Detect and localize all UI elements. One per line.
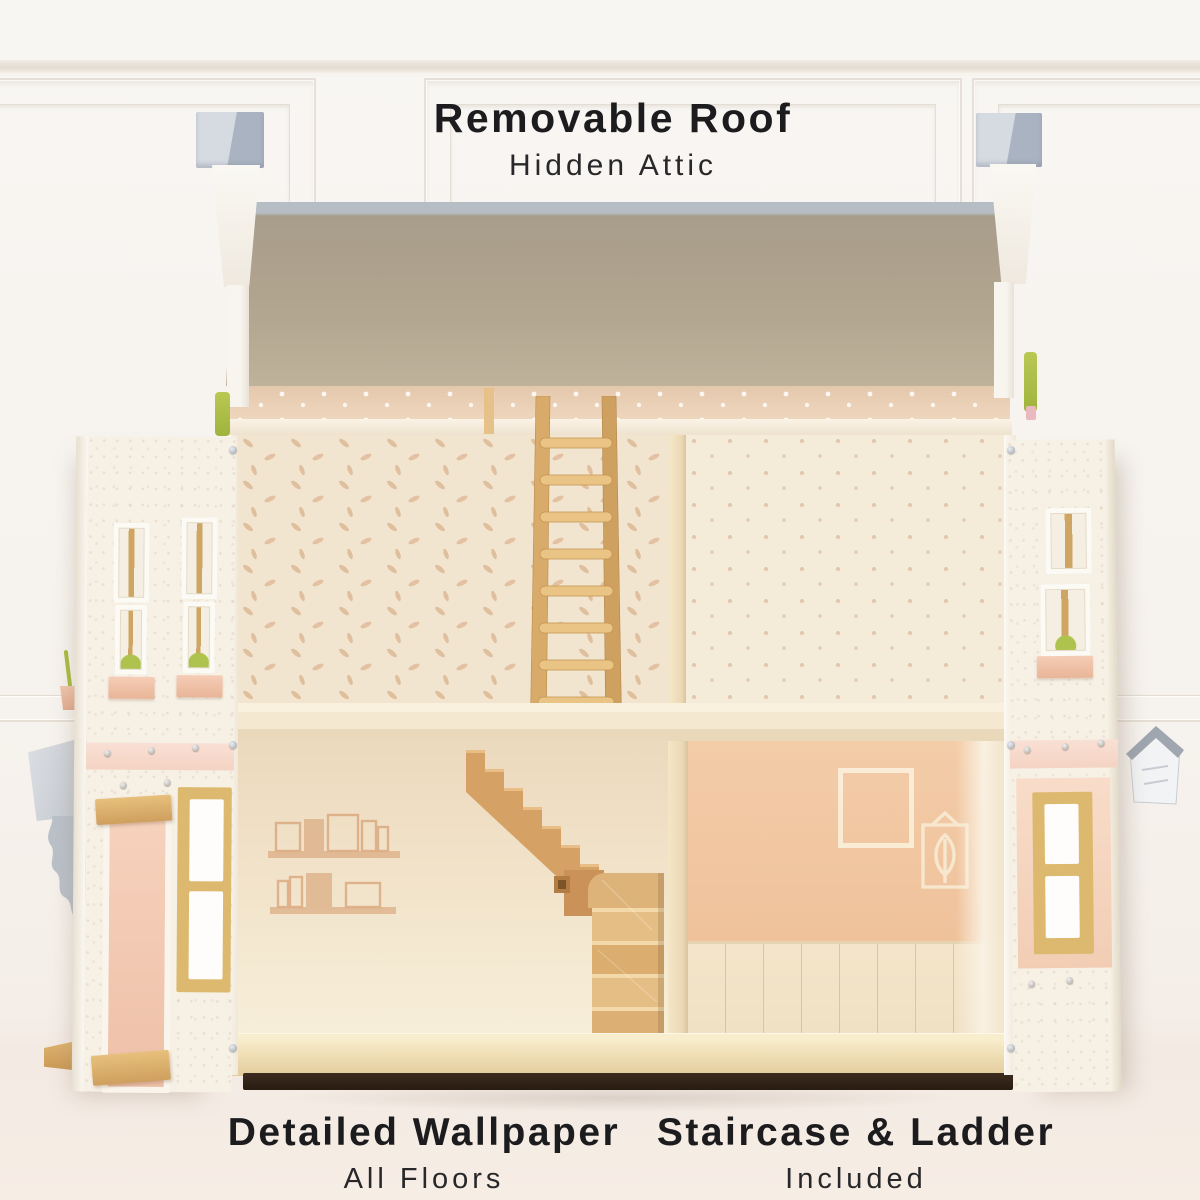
caption-bottom-right-subtitle: Included bbox=[657, 1162, 1055, 1197]
chimney-cap-left bbox=[196, 112, 264, 168]
caption-bottom-right-title: Staircase & Ladder bbox=[657, 1112, 1055, 1155]
dollhouse-product-photo: Removable Roof Hidden Attic Detailed Wal… bbox=[0, 0, 1200, 1200]
screw bbox=[104, 750, 111, 757]
facade-window bbox=[1040, 584, 1091, 657]
removable-roof-panel bbox=[226, 202, 1012, 386]
shelf-decal bbox=[268, 801, 418, 921]
chimney-post-right bbox=[994, 282, 1014, 398]
screw bbox=[164, 779, 171, 786]
facade-door-right bbox=[1007, 439, 1122, 1092]
screw bbox=[1062, 743, 1069, 750]
window-pane bbox=[1044, 804, 1079, 864]
window-pane bbox=[189, 891, 224, 979]
window-pane bbox=[1045, 876, 1080, 938]
dormer-birdhouse bbox=[1122, 726, 1184, 806]
caption-top: Removable Roof Hidden Attic bbox=[434, 96, 793, 184]
screw bbox=[1098, 740, 1105, 747]
window-pane bbox=[189, 799, 224, 881]
screw bbox=[1024, 746, 1031, 753]
caption-bottom-left: Detailed Wallpaper All Floors bbox=[228, 1112, 620, 1197]
facade-window bbox=[113, 523, 150, 603]
flower-pink bbox=[1026, 406, 1036, 420]
door-trim-top bbox=[95, 794, 172, 825]
tree-right bbox=[1024, 352, 1037, 412]
facade-window bbox=[183, 601, 216, 673]
screw bbox=[120, 782, 127, 789]
attic-hatch-post bbox=[484, 388, 494, 434]
hinge-screw bbox=[1007, 1044, 1015, 1052]
hinge-screw bbox=[229, 446, 237, 454]
screw bbox=[1028, 980, 1035, 987]
hinge-screw bbox=[229, 1044, 237, 1052]
house-base bbox=[230, 1033, 1012, 1076]
facade-door-left bbox=[84, 436, 237, 1092]
wood-framed-window bbox=[176, 787, 231, 992]
screw bbox=[192, 744, 199, 751]
picture-frame-decal bbox=[838, 768, 914, 848]
facade-window bbox=[115, 605, 147, 675]
window-box bbox=[108, 677, 154, 699]
hinge-screw bbox=[229, 741, 237, 749]
facade-window bbox=[1045, 508, 1092, 574]
house-base-shadow bbox=[243, 1073, 1013, 1090]
upper-room-divider bbox=[670, 435, 686, 703]
second-storey-floor-edge bbox=[228, 703, 1012, 741]
caption-bottom-left-subtitle: All Floors bbox=[228, 1162, 620, 1197]
hinge-screw bbox=[1007, 741, 1015, 749]
wooden-ladder bbox=[528, 396, 624, 746]
staircase bbox=[452, 740, 702, 1040]
chimney-cap-right bbox=[976, 113, 1042, 167]
screw bbox=[148, 747, 155, 754]
upper-room-right-wallpaper bbox=[686, 435, 1006, 703]
screw bbox=[1066, 977, 1073, 984]
caption-top-title: Removable Roof bbox=[434, 96, 793, 141]
tree-left bbox=[215, 392, 230, 436]
caption-bottom-left-title: Detailed Wallpaper bbox=[228, 1112, 620, 1155]
facade-window bbox=[181, 517, 218, 599]
hinge-screw bbox=[1007, 446, 1015, 454]
chimney-post-left bbox=[227, 285, 249, 407]
caption-top-subtitle: Hidden Attic bbox=[434, 148, 793, 184]
caption-bottom-right: Staircase & Ladder Included bbox=[657, 1112, 1055, 1197]
wood-framed-window bbox=[1032, 792, 1094, 955]
house-side-wall bbox=[956, 741, 1006, 1033]
window-box bbox=[176, 675, 222, 697]
wall-chair-rail bbox=[0, 60, 1200, 76]
door-trim-bottom bbox=[91, 1050, 171, 1086]
window-box bbox=[1037, 656, 1093, 679]
